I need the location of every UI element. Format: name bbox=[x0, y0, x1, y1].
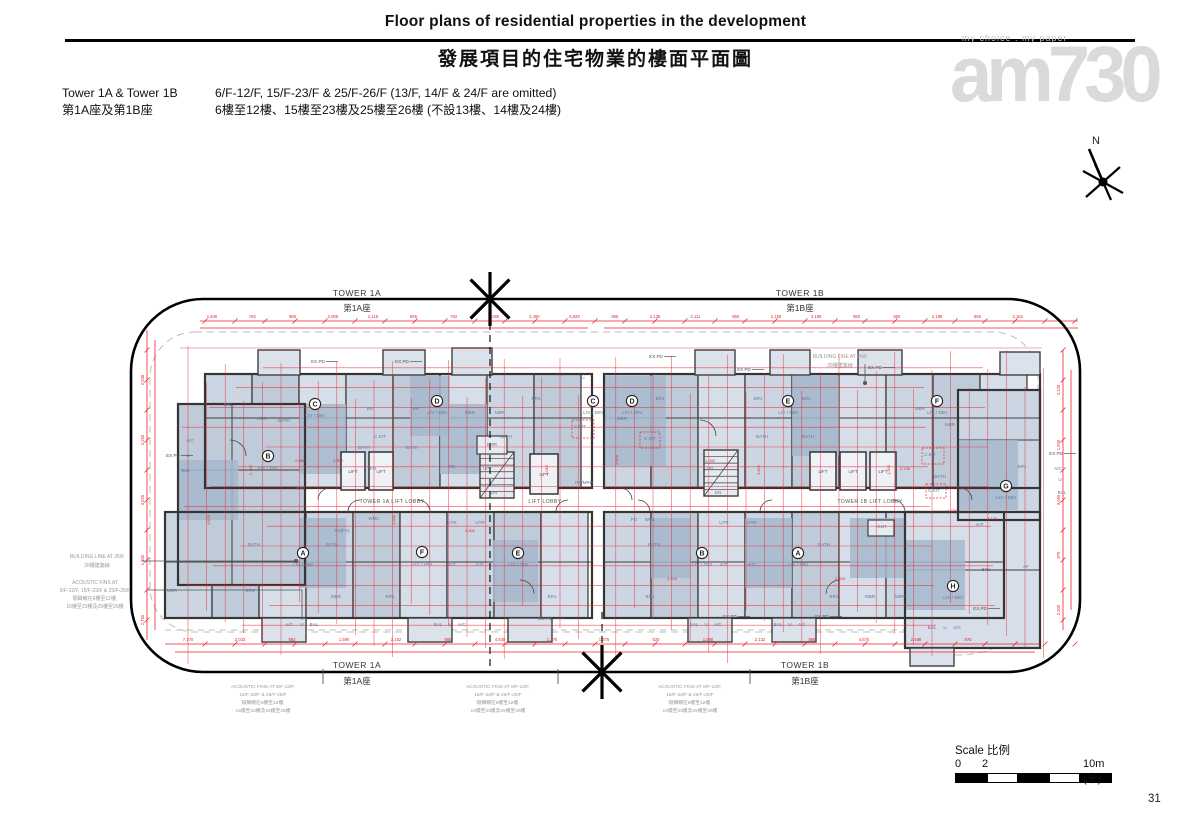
room-label: UTR bbox=[719, 520, 729, 525]
unit-letter: D bbox=[434, 398, 439, 405]
room-label: KIT bbox=[476, 562, 483, 567]
dimension-text: 2,400 bbox=[835, 576, 846, 581]
room-label: WML bbox=[645, 517, 656, 522]
expd-label: EX.PD bbox=[166, 453, 180, 458]
room-label: PD bbox=[631, 517, 638, 522]
north-arrow bbox=[1082, 132, 1128, 210]
room-label: KIT bbox=[720, 562, 727, 567]
room-label: BATH bbox=[818, 542, 830, 547]
brochure-page: Floor plans of residential properties in… bbox=[0, 0, 1191, 826]
room-label: BR1 bbox=[646, 594, 655, 599]
dimension-text: 2,135 bbox=[650, 314, 661, 319]
dimension-text: 2,600 bbox=[465, 528, 476, 533]
unit-letter: C bbox=[312, 401, 317, 408]
room-label: BATH bbox=[358, 445, 370, 450]
room-label: KIT bbox=[296, 486, 303, 491]
scale-tick-2: 2 bbox=[982, 758, 988, 770]
dimension-text: 2,188 bbox=[932, 314, 943, 319]
annotation-acoustic-fins: ACOUSTIC FINS AT bbox=[72, 580, 118, 586]
tower-label-en: TOWER 1A bbox=[333, 660, 381, 670]
dimension-text: 6,820 bbox=[569, 314, 580, 319]
room-label: KIT bbox=[748, 562, 755, 567]
unit-livdin-label: LIV / DIN bbox=[943, 595, 963, 601]
page-number: 31 bbox=[1148, 793, 1161, 805]
dimension-text: 3,525 bbox=[140, 494, 145, 505]
annotation-acoustic-fins: ACOUSTIC FINS AT 6/F-12/F, bbox=[658, 684, 722, 690]
dimension-text: 2,460 bbox=[529, 314, 540, 319]
unit-letter: A bbox=[300, 550, 305, 557]
lift-label: LIFT bbox=[348, 469, 357, 474]
dimension-text: 2,135 bbox=[900, 466, 911, 471]
dimension-text: 865 bbox=[410, 314, 418, 319]
page-title-en: Floor plans of residential properties in… bbox=[0, 13, 1191, 31]
room-label: BR1 bbox=[246, 588, 255, 593]
page-title-zh: 發展項目的住宅物業的樓面平面圖 bbox=[0, 44, 1191, 71]
dimension-text: 1,275 bbox=[547, 637, 558, 642]
tower-label-zh: 第1B座 bbox=[786, 303, 814, 313]
dimension-text: 2,088 bbox=[295, 458, 306, 463]
dimension-text: 2,088 bbox=[328, 314, 339, 319]
north-label: N bbox=[1092, 135, 1100, 147]
room-label: BAL bbox=[928, 625, 937, 630]
room-label: WMC bbox=[368, 516, 380, 521]
dimension-text: 2,400 bbox=[667, 576, 678, 581]
lift-label: LIFT bbox=[376, 469, 385, 474]
dimension-text: 7,170 bbox=[183, 637, 194, 642]
room-label: DN bbox=[491, 490, 498, 495]
room-label: BAL bbox=[774, 622, 783, 627]
title-divider bbox=[65, 39, 1135, 42]
floor-range-en: 6/F-12/F, 15/F-23/F & 25/F-26/F (13/F, 1… bbox=[215, 85, 556, 102]
unit-letter: H bbox=[950, 583, 955, 590]
room-label: BAL bbox=[434, 622, 443, 627]
dimension-text: 865 bbox=[732, 314, 740, 319]
annotation-acoustic-fins: 15/F-23/F & 25/F-26/F bbox=[474, 692, 522, 698]
room-label: U bbox=[300, 622, 303, 627]
room-label: MBR bbox=[167, 588, 178, 593]
room-label: BATH bbox=[500, 434, 512, 439]
dimension-text: 2,033 bbox=[235, 637, 246, 642]
annotation-acoustic-fins: 隔聲鰭在6樓至12樓, bbox=[669, 699, 712, 706]
expd-label: EX.PD bbox=[868, 365, 882, 370]
dimension-text: 2,162 bbox=[391, 637, 402, 642]
dimension-text: 865 bbox=[289, 314, 297, 319]
room-label: MBR bbox=[465, 410, 476, 415]
room-label: U bbox=[943, 625, 946, 630]
dimension-text: 2,538 bbox=[140, 374, 145, 385]
unit-livdin-label: LIV / DIN bbox=[305, 413, 325, 419]
dimension-text: 865 bbox=[974, 314, 982, 319]
dimension-text: 1,300 bbox=[140, 554, 145, 565]
floor-plan: LIFTLIFTLIFTLIFTLIFTLIFT1,9407828652,088… bbox=[0, 0, 1191, 826]
expd-label: EX.PD bbox=[395, 359, 409, 364]
room-label: BR1 bbox=[386, 594, 395, 599]
room-label: C.KIT bbox=[924, 452, 936, 457]
dimension-text: 2,125 bbox=[1056, 384, 1061, 395]
room-label: MBR bbox=[617, 416, 628, 421]
dimension-text: 2,162 bbox=[1012, 314, 1023, 319]
unit-letter: F bbox=[420, 549, 425, 556]
dimension-text: 865 bbox=[809, 637, 817, 642]
scale-tick-10: 10m (米) bbox=[1083, 758, 1112, 786]
annotation-building-line: BUILDING LINE AT 26/F bbox=[813, 354, 868, 360]
annotation-acoustic-fins: 15樓至23樓及25樓至26樓 bbox=[663, 707, 718, 714]
unit-letter: F bbox=[935, 398, 940, 405]
annotation-acoustic-fins: 隔聲鰭在6樓至12樓, bbox=[73, 595, 118, 602]
room-label: A/C bbox=[953, 625, 961, 630]
tower-label-zh: 第1A座 bbox=[343, 303, 371, 313]
room-label: U bbox=[1058, 477, 1061, 482]
dimension-text: 2,118 bbox=[368, 314, 379, 319]
dimension-text: 1,590 bbox=[339, 637, 350, 642]
room-label: A/C bbox=[285, 622, 293, 627]
annotation-building-line: 26樓建築線 bbox=[84, 562, 110, 569]
dimension-text: 782 bbox=[450, 314, 458, 319]
dimension-text: 2,150 bbox=[771, 314, 782, 319]
room-label: KIT bbox=[976, 522, 983, 527]
dimension-text: 4,800 bbox=[333, 458, 344, 463]
dimension-text: 4,630 bbox=[495, 637, 506, 642]
unit-livdin-label: LIV / DIN bbox=[583, 410, 603, 416]
expd-label: EX.PD bbox=[723, 614, 737, 619]
room-label: PD(FS) bbox=[334, 528, 350, 533]
dimension-text: 1,050 bbox=[544, 464, 549, 475]
dimension-text: 2,300 bbox=[1056, 604, 1061, 615]
tower-name-en: Tower 1A & Tower 1B bbox=[62, 85, 215, 102]
room-label: UTR bbox=[747, 520, 757, 525]
room-label: EMR bbox=[487, 442, 498, 447]
lift-label: LIFT bbox=[848, 469, 857, 474]
unit-livdin-label: LIV / DIN bbox=[692, 562, 712, 568]
room-label: BAL bbox=[182, 468, 191, 473]
unit-livdin-label: LIV / DIN bbox=[427, 410, 447, 416]
annotation-acoustic-fins: 隔聲鰭在6樓至12樓, bbox=[242, 699, 285, 706]
room-label: KIT bbox=[448, 562, 455, 567]
dimension-text: 1,500 bbox=[1056, 439, 1061, 450]
room-label: BR1 bbox=[754, 396, 763, 401]
dimension-text: 875 bbox=[1056, 551, 1061, 559]
unit-letter: G bbox=[1003, 483, 1009, 490]
room-label: UP bbox=[707, 466, 713, 471]
room-label: BR bbox=[413, 406, 420, 411]
room-label: BR1 bbox=[548, 594, 557, 599]
room-label: MBR bbox=[945, 422, 956, 427]
room-label: MBR bbox=[331, 594, 342, 599]
annotation-acoustic-fins: ACOUSTIC FINS AT 6/F-12/F, bbox=[231, 684, 295, 690]
room-label: PD bbox=[370, 466, 377, 471]
annotation-acoustic-fins: ACOUSTIC FINS AT 6/F-12/F, bbox=[466, 684, 530, 690]
unit-livdin-label: LIV / DIN bbox=[788, 562, 808, 568]
tower-label-en: TOWER 1A bbox=[333, 288, 381, 298]
unit-letter: E bbox=[516, 550, 521, 557]
dimension-text: 865 bbox=[611, 314, 619, 319]
room-label: C.KIT bbox=[374, 434, 386, 439]
annotation-acoustic-fins: 15/F-23/F & 25/F-26/F bbox=[239, 692, 287, 698]
dimension-text: 962 bbox=[289, 637, 297, 642]
room-label: BAL bbox=[690, 622, 699, 627]
dimension-text: 4,730 bbox=[947, 508, 958, 513]
lift-lobby-label: TOWER 1A LIFT LOBBY bbox=[359, 499, 424, 505]
unit-livdin-label: LIV / DIN bbox=[412, 561, 432, 567]
unit-livdin-label: LIV / DIN bbox=[778, 410, 798, 416]
dimension-text: 2,132 bbox=[755, 637, 766, 642]
room-label: MBR bbox=[495, 410, 506, 415]
room-label: BATH bbox=[406, 445, 418, 450]
unit-letter: D bbox=[629, 398, 634, 405]
lift-lobby-label: TOWER 1B LIFT LOBBY bbox=[837, 499, 902, 505]
scale-tick-0: 0 bbox=[955, 758, 961, 770]
room-label: BR1 bbox=[656, 396, 665, 401]
room-label: C.KIT bbox=[574, 424, 586, 429]
annotation-acoustic-fins: 6/F-12/F, 15/F-23/F & 25/F-26/F bbox=[60, 588, 131, 594]
expd-label: EX.PD bbox=[815, 614, 829, 619]
dimension-text: 875 bbox=[965, 637, 973, 642]
room-label: RS/MRR bbox=[575, 480, 594, 485]
expd-label: EX.PD bbox=[737, 367, 751, 372]
room-label: DN bbox=[715, 490, 722, 495]
tower-label-en: TOWER 1B bbox=[776, 288, 824, 298]
dimension-text: 620 bbox=[653, 637, 661, 642]
dimension-text: 2,750 bbox=[140, 614, 145, 625]
room-label: MBR bbox=[257, 416, 268, 421]
dimension-text: 950 bbox=[893, 314, 901, 319]
dimension-text: 2,185 bbox=[811, 314, 822, 319]
room-label: ELR bbox=[878, 524, 888, 529]
annotation-acoustic-fins: 15樓至23樓及25樓至26樓 bbox=[236, 707, 291, 714]
dimension-text: 2,111 bbox=[690, 314, 701, 319]
room-label: A/C bbox=[458, 622, 466, 627]
room-label: BR1 bbox=[532, 396, 541, 401]
room-label: BAL bbox=[1058, 490, 1067, 495]
dimension-text: 1,825 bbox=[756, 464, 761, 475]
room-label: A/C bbox=[186, 438, 194, 443]
room-label: UTR bbox=[475, 520, 485, 525]
room-label: U bbox=[788, 622, 791, 627]
room-label: AF bbox=[1023, 564, 1029, 569]
unit-letter: E bbox=[786, 398, 791, 405]
unit-letter: C bbox=[590, 398, 595, 405]
annotation-building-line: BUILDING LINE AT 26/F bbox=[70, 554, 125, 560]
room-label: MBR bbox=[915, 406, 926, 411]
annotation-acoustic-fins: 隔聲鰭在6樓至12樓, bbox=[477, 699, 520, 706]
dimension-text: 1,275 bbox=[599, 637, 610, 642]
room-label: BR bbox=[367, 406, 374, 411]
lift-lobby-label: LIFT LOBBY bbox=[528, 499, 561, 505]
expd-label: EX.PD bbox=[1049, 451, 1063, 456]
dimension-text: 782 bbox=[249, 314, 257, 319]
room-label: BATH bbox=[248, 542, 260, 547]
dimension-text: 3,050 bbox=[1056, 494, 1061, 505]
tower-info-block: Tower 1A & Tower 1B 6/F-12/F, 15/F-23/F … bbox=[62, 85, 561, 119]
room-label: A/C bbox=[798, 622, 806, 627]
tower-label-zh: 第1B座 bbox=[791, 676, 819, 686]
unit-letter: A bbox=[795, 550, 800, 557]
room-label: BR1 bbox=[802, 396, 811, 401]
room-label: BATH bbox=[326, 542, 338, 547]
room-label: BR1 bbox=[982, 567, 991, 572]
room-label: C.KIT bbox=[644, 436, 656, 441]
dimension-text: 2,400 bbox=[248, 464, 253, 475]
dimension-text: 865 bbox=[445, 637, 453, 642]
room-label: BATH bbox=[278, 418, 290, 423]
unit-livdin-label: LIV / DIN bbox=[996, 495, 1016, 501]
floor-range-zh: 6樓至12樓、15樓至23樓及25樓至26樓 (不設13樓、14樓及24樓) bbox=[215, 102, 561, 119]
room-label: U bbox=[448, 622, 451, 627]
room-label: BATH bbox=[648, 542, 660, 547]
annotation-building-line: 26樓建築線 bbox=[827, 362, 853, 369]
dimension-text: 1,080 bbox=[705, 458, 716, 463]
annotation-acoustic-fins: 15樓至23樓及25樓至26樓 bbox=[471, 707, 526, 714]
dimension-text: 2,488 bbox=[911, 637, 922, 642]
room-label: A/C bbox=[1054, 466, 1062, 471]
room-label: BATH bbox=[934, 474, 946, 479]
room-label: BR1 bbox=[224, 402, 233, 407]
room-label: BR1 bbox=[830, 594, 839, 599]
dimension-text: 4,250 bbox=[140, 434, 145, 445]
room-label: MBR bbox=[895, 594, 906, 599]
unit-livdin-label: LIV / DIN bbox=[508, 562, 528, 568]
expd-label: EX.PD bbox=[538, 616, 552, 621]
expd-label: EX.PD bbox=[973, 606, 987, 611]
scale-label: Scale 比例 bbox=[955, 742, 1112, 758]
annotation-acoustic-fins: 15/F-23/F & 25/F-26/F bbox=[666, 692, 714, 698]
unit-livdin-label: LIV / DIN bbox=[927, 410, 947, 416]
dimension-text: 1,500 bbox=[391, 514, 396, 525]
room-label: BR1 bbox=[1018, 464, 1027, 469]
dimension-text: 1,590 bbox=[703, 637, 714, 642]
expd-label: EX.PD bbox=[311, 359, 325, 364]
dimension-text: 2,800 bbox=[614, 454, 619, 465]
room-label: C.KIT bbox=[928, 488, 940, 493]
dimension-text: 950 bbox=[853, 314, 861, 319]
room-label: PD bbox=[449, 464, 456, 469]
lift-label: LIFT bbox=[818, 469, 827, 474]
scale-bar: Scale 比例 0 2 10m (米) bbox=[955, 742, 1112, 783]
unit-letter: B bbox=[265, 453, 270, 460]
room-label: UTR bbox=[447, 520, 457, 525]
room-label: BATH bbox=[802, 434, 814, 439]
dimension-text: 1,300 bbox=[886, 464, 891, 475]
room-label: UP bbox=[483, 466, 489, 471]
tower-name-zh: 第1A座及第1B座 bbox=[62, 102, 215, 119]
dimension-text: 4,570 bbox=[859, 637, 870, 642]
room-label: A/C bbox=[714, 622, 722, 627]
dimension-text: 1,825 bbox=[206, 514, 211, 525]
unit-letter: B bbox=[699, 550, 704, 557]
tower-label-zh: 第1A座 bbox=[343, 676, 371, 686]
unit-livdin-label: LIV / DIN bbox=[258, 465, 278, 471]
annotation-acoustic-fins: 15樓至23樓及25樓至26樓 bbox=[66, 603, 123, 610]
dimension-text: 2,125 bbox=[987, 516, 998, 521]
room-label: U bbox=[704, 622, 707, 627]
room-label: BAL bbox=[310, 622, 319, 627]
room-label: BATH bbox=[756, 434, 768, 439]
expd-label: EX.PD bbox=[649, 354, 663, 359]
room-label: MBR bbox=[865, 594, 876, 599]
dimension-text: 1,940 bbox=[207, 314, 218, 319]
tower-label-en: TOWER 1B bbox=[781, 660, 829, 670]
